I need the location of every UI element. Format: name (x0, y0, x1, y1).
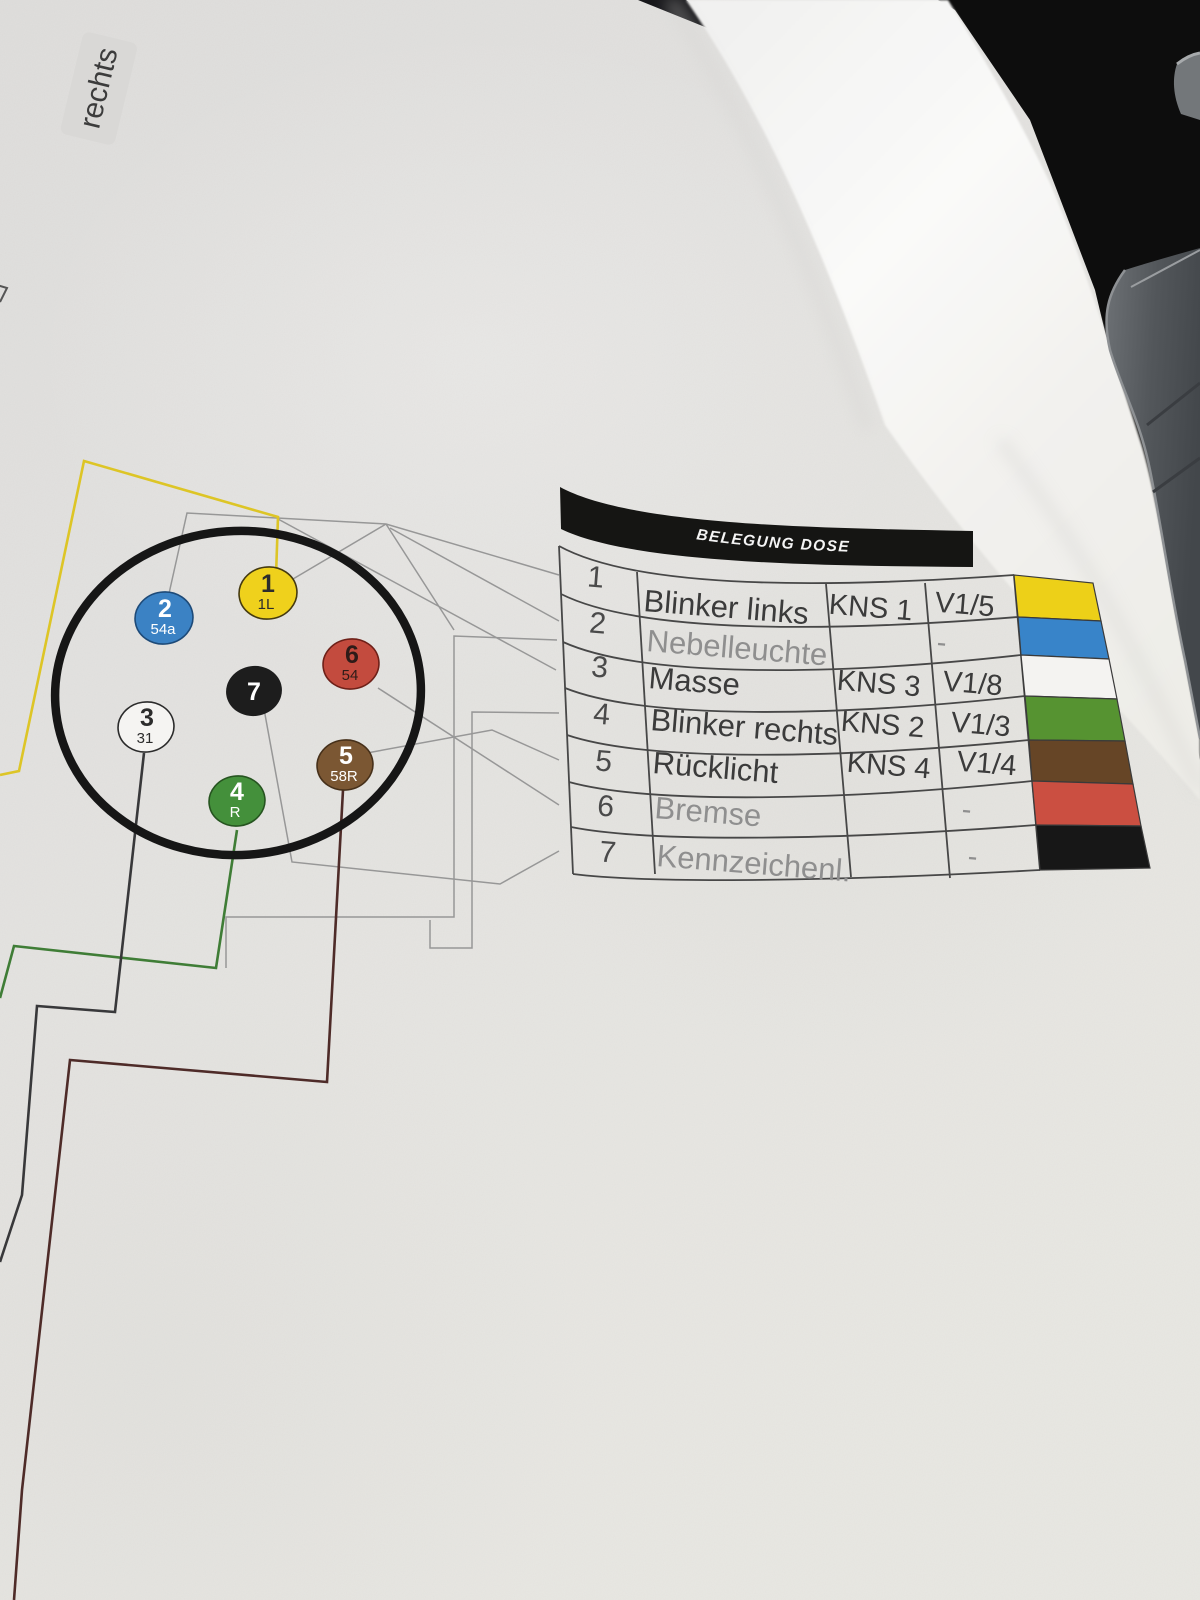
svg-text:54a: 54a (150, 621, 176, 638)
svg-text:4: 4 (230, 778, 244, 806)
svg-text:V1/5: V1/5 (934, 587, 996, 624)
svg-text:V1/4: V1/4 (956, 746, 1018, 783)
svg-text:7: 7 (247, 678, 261, 706)
svg-text:Masse: Masse (647, 660, 741, 702)
svg-text:6: 6 (596, 789, 615, 823)
svg-text:KNS 1: KNS 1 (828, 589, 914, 628)
svg-text:31: 31 (137, 730, 154, 747)
svg-text:2: 2 (588, 606, 607, 640)
svg-text:V1/8: V1/8 (942, 666, 1004, 703)
svg-text:R: R (230, 804, 241, 821)
svg-text:54: 54 (342, 667, 359, 684)
svg-text:V1/3: V1/3 (950, 707, 1012, 744)
svg-text:KNS 2: KNS 2 (840, 706, 926, 745)
svg-text:5: 5 (594, 744, 613, 778)
svg-text:58R: 58R (330, 768, 358, 785)
svg-text:5: 5 (339, 742, 353, 770)
svg-text:1L: 1L (258, 596, 275, 613)
svg-text:KNS 3: KNS 3 (836, 665, 922, 704)
svg-text:KNS 4: KNS 4 (846, 747, 932, 786)
svg-text:6: 6 (345, 641, 359, 669)
svg-text:3: 3 (590, 650, 609, 684)
svg-text:2: 2 (158, 595, 172, 623)
svg-text:1: 1 (261, 570, 275, 598)
svg-text:3: 3 (140, 704, 154, 732)
svg-text:4: 4 (592, 697, 611, 731)
svg-text:1: 1 (586, 560, 605, 594)
svg-text:7: 7 (598, 835, 617, 869)
